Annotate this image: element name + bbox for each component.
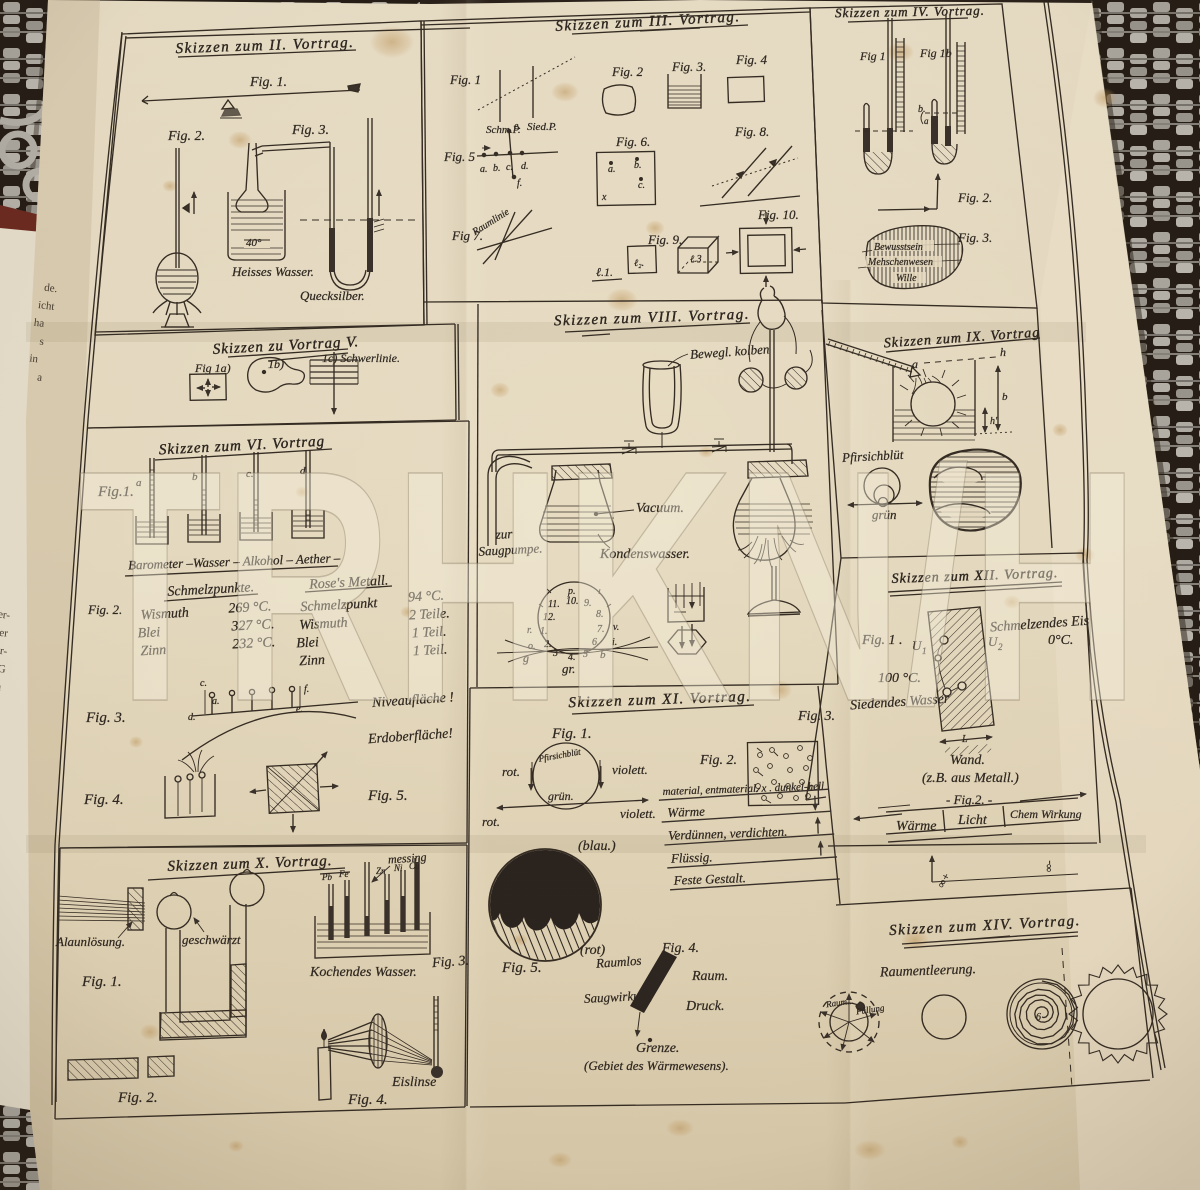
svg-text:TRHKN/H: TRHKN/H: [78, 401, 1140, 770]
